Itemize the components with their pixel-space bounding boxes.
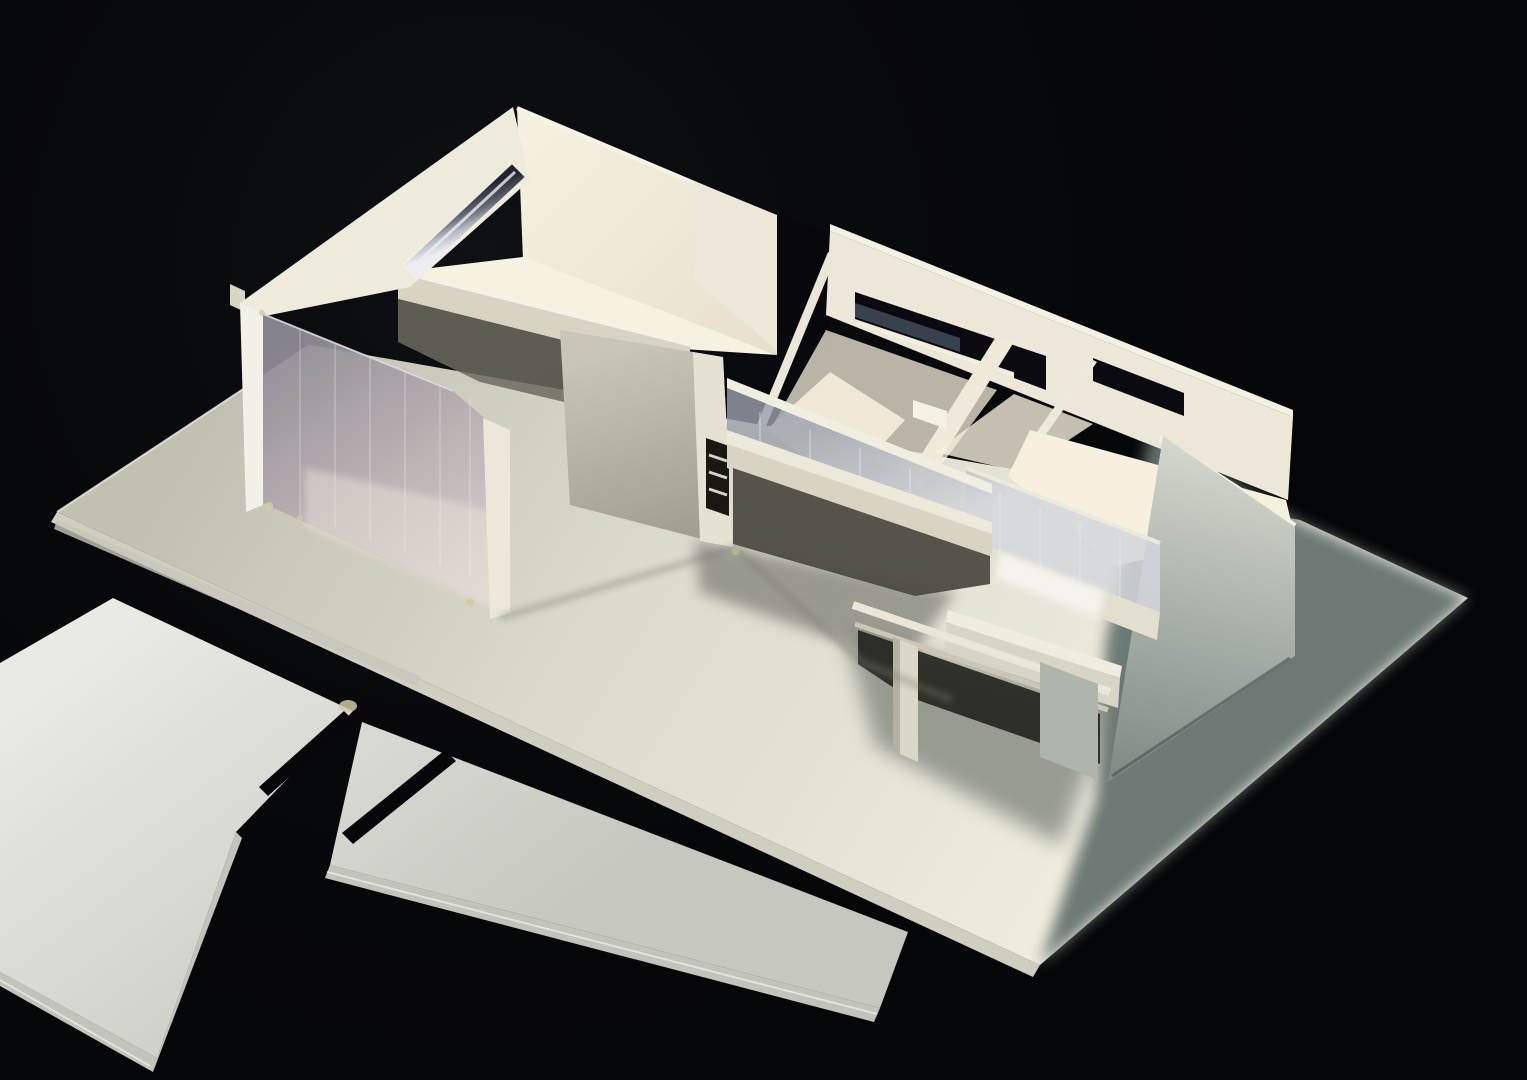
panel-large-glue xyxy=(339,700,357,712)
pier xyxy=(900,640,918,762)
architectural-model-photo: Studio photograph of a white cardboard a… xyxy=(0,0,1527,1080)
pier-shaded-side xyxy=(893,637,900,754)
model-photo-svg xyxy=(0,0,1527,1080)
